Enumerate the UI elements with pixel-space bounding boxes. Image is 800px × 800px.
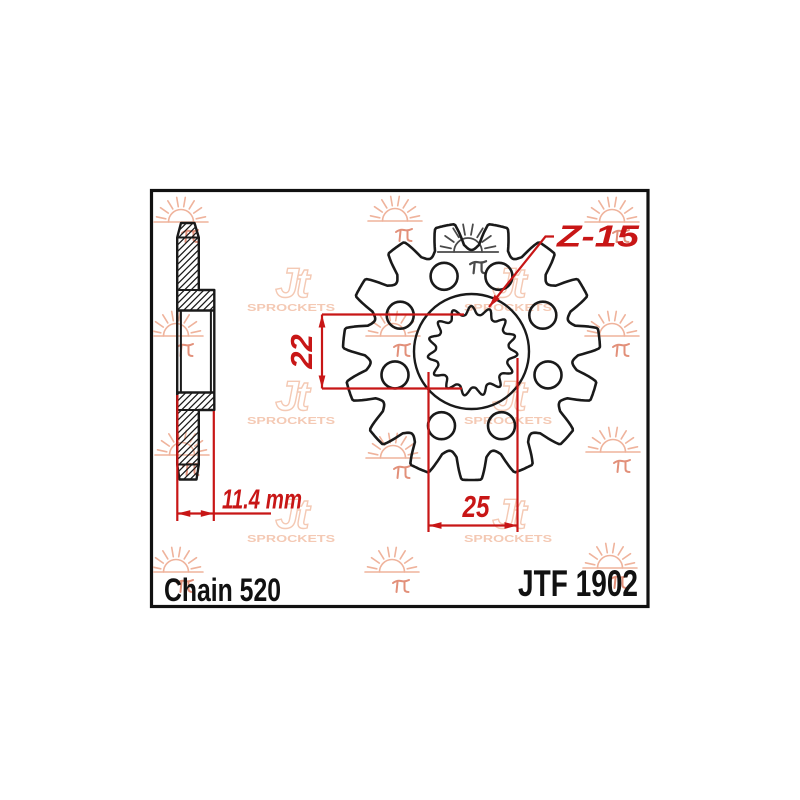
teeth-count-label: Z-15 [556, 219, 640, 254]
dim-width-label: 11.4 mm [222, 484, 302, 515]
jt-logo-subtext: SPROCKETS [464, 415, 552, 427]
jt-logo-subtext: SPROCKETS [464, 533, 552, 545]
dim-25-label: 25 [462, 489, 490, 524]
jt-logo-letters: Jt [492, 490, 528, 537]
part-number-label: JTF 1902 [518, 563, 638, 604]
dim-22-label: 22 [284, 334, 319, 369]
jt-logo-subtext: SPROCKETS [247, 415, 335, 427]
sprocket-technical-drawing: JtSPROCKETSJtSPROCKETSJtSPROCKETSJtSPROC… [0, 0, 800, 800]
chain-size-label: Chain 520 [164, 572, 281, 608]
jt-logo-letters: Jt [275, 372, 311, 419]
drawing-svg: JtSPROCKETSJtSPROCKETSJtSPROCKETSJtSPROC… [0, 0, 800, 800]
jt-logo-letters: Jt [275, 259, 311, 306]
jt-logo-subtext: SPROCKETS [247, 533, 335, 545]
jt-logo-subtext: SPROCKETS [247, 302, 335, 314]
